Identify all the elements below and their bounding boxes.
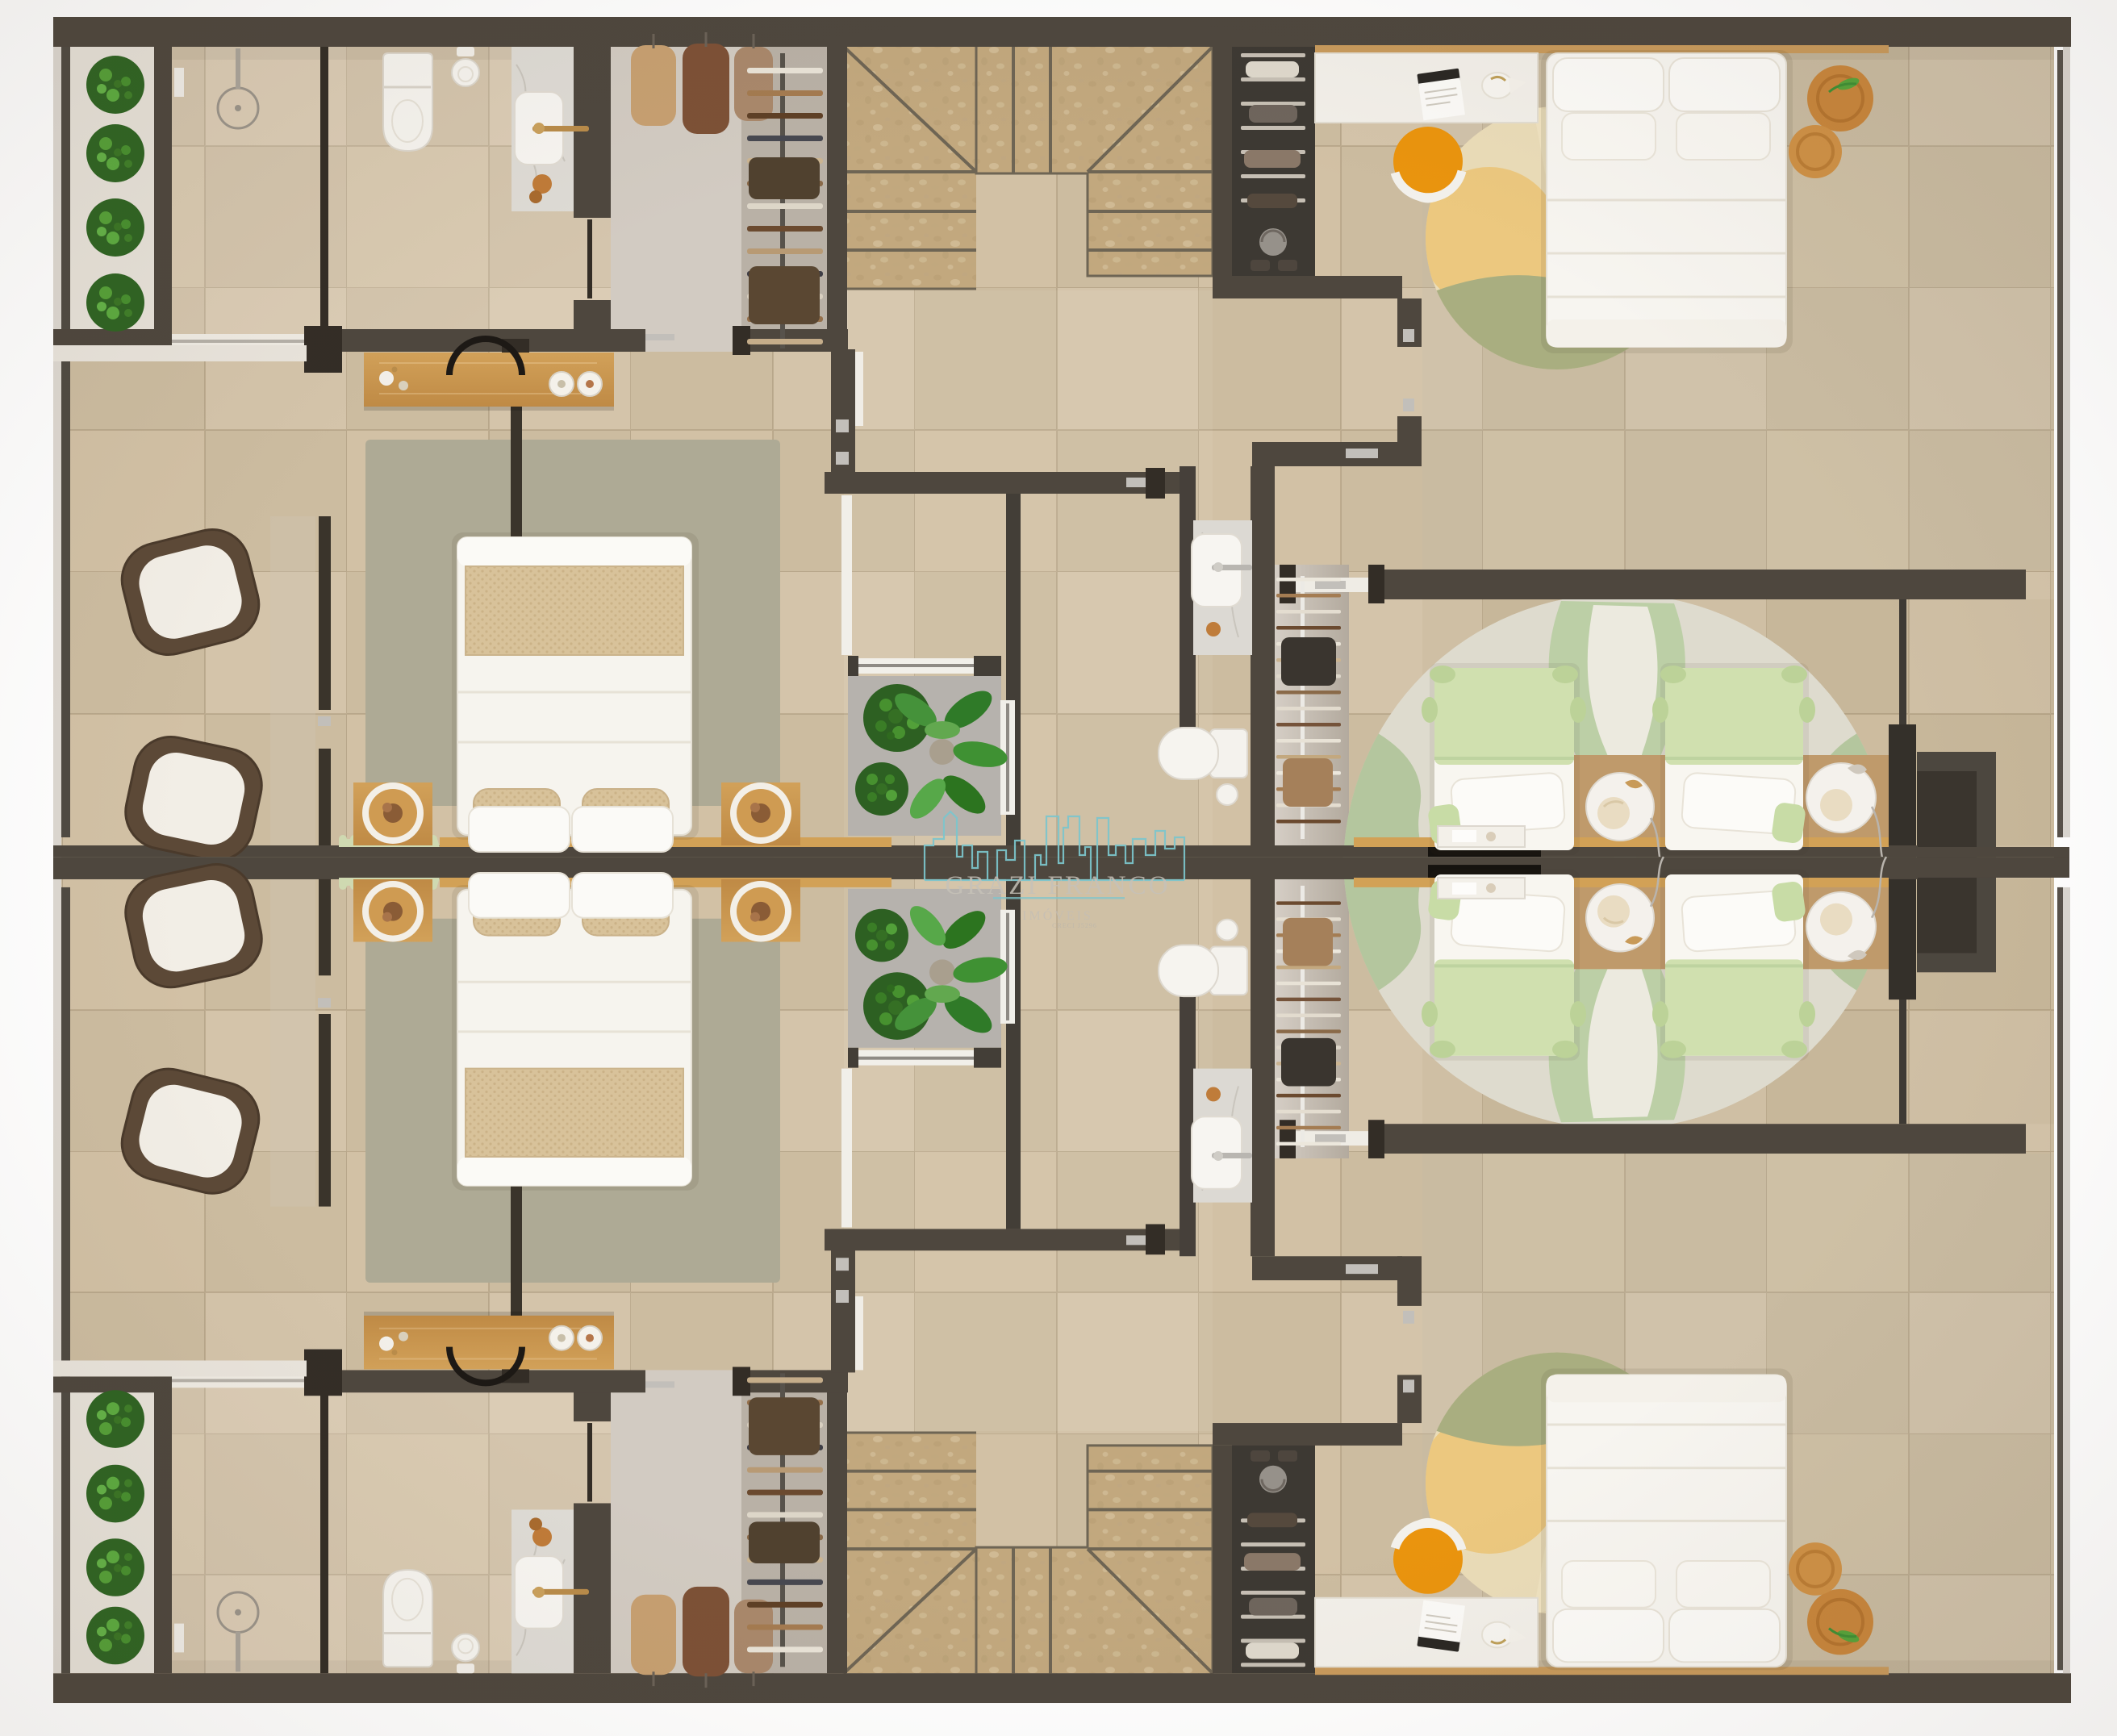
svg-text:GRAZI FRANCO: GRAZI FRANCO bbox=[946, 871, 1171, 900]
svg-text:IMÓVEIS: IMÓVEIS bbox=[1022, 908, 1093, 923]
svg-text:CRECI J5296: CRECI J5296 bbox=[1052, 922, 1097, 929]
